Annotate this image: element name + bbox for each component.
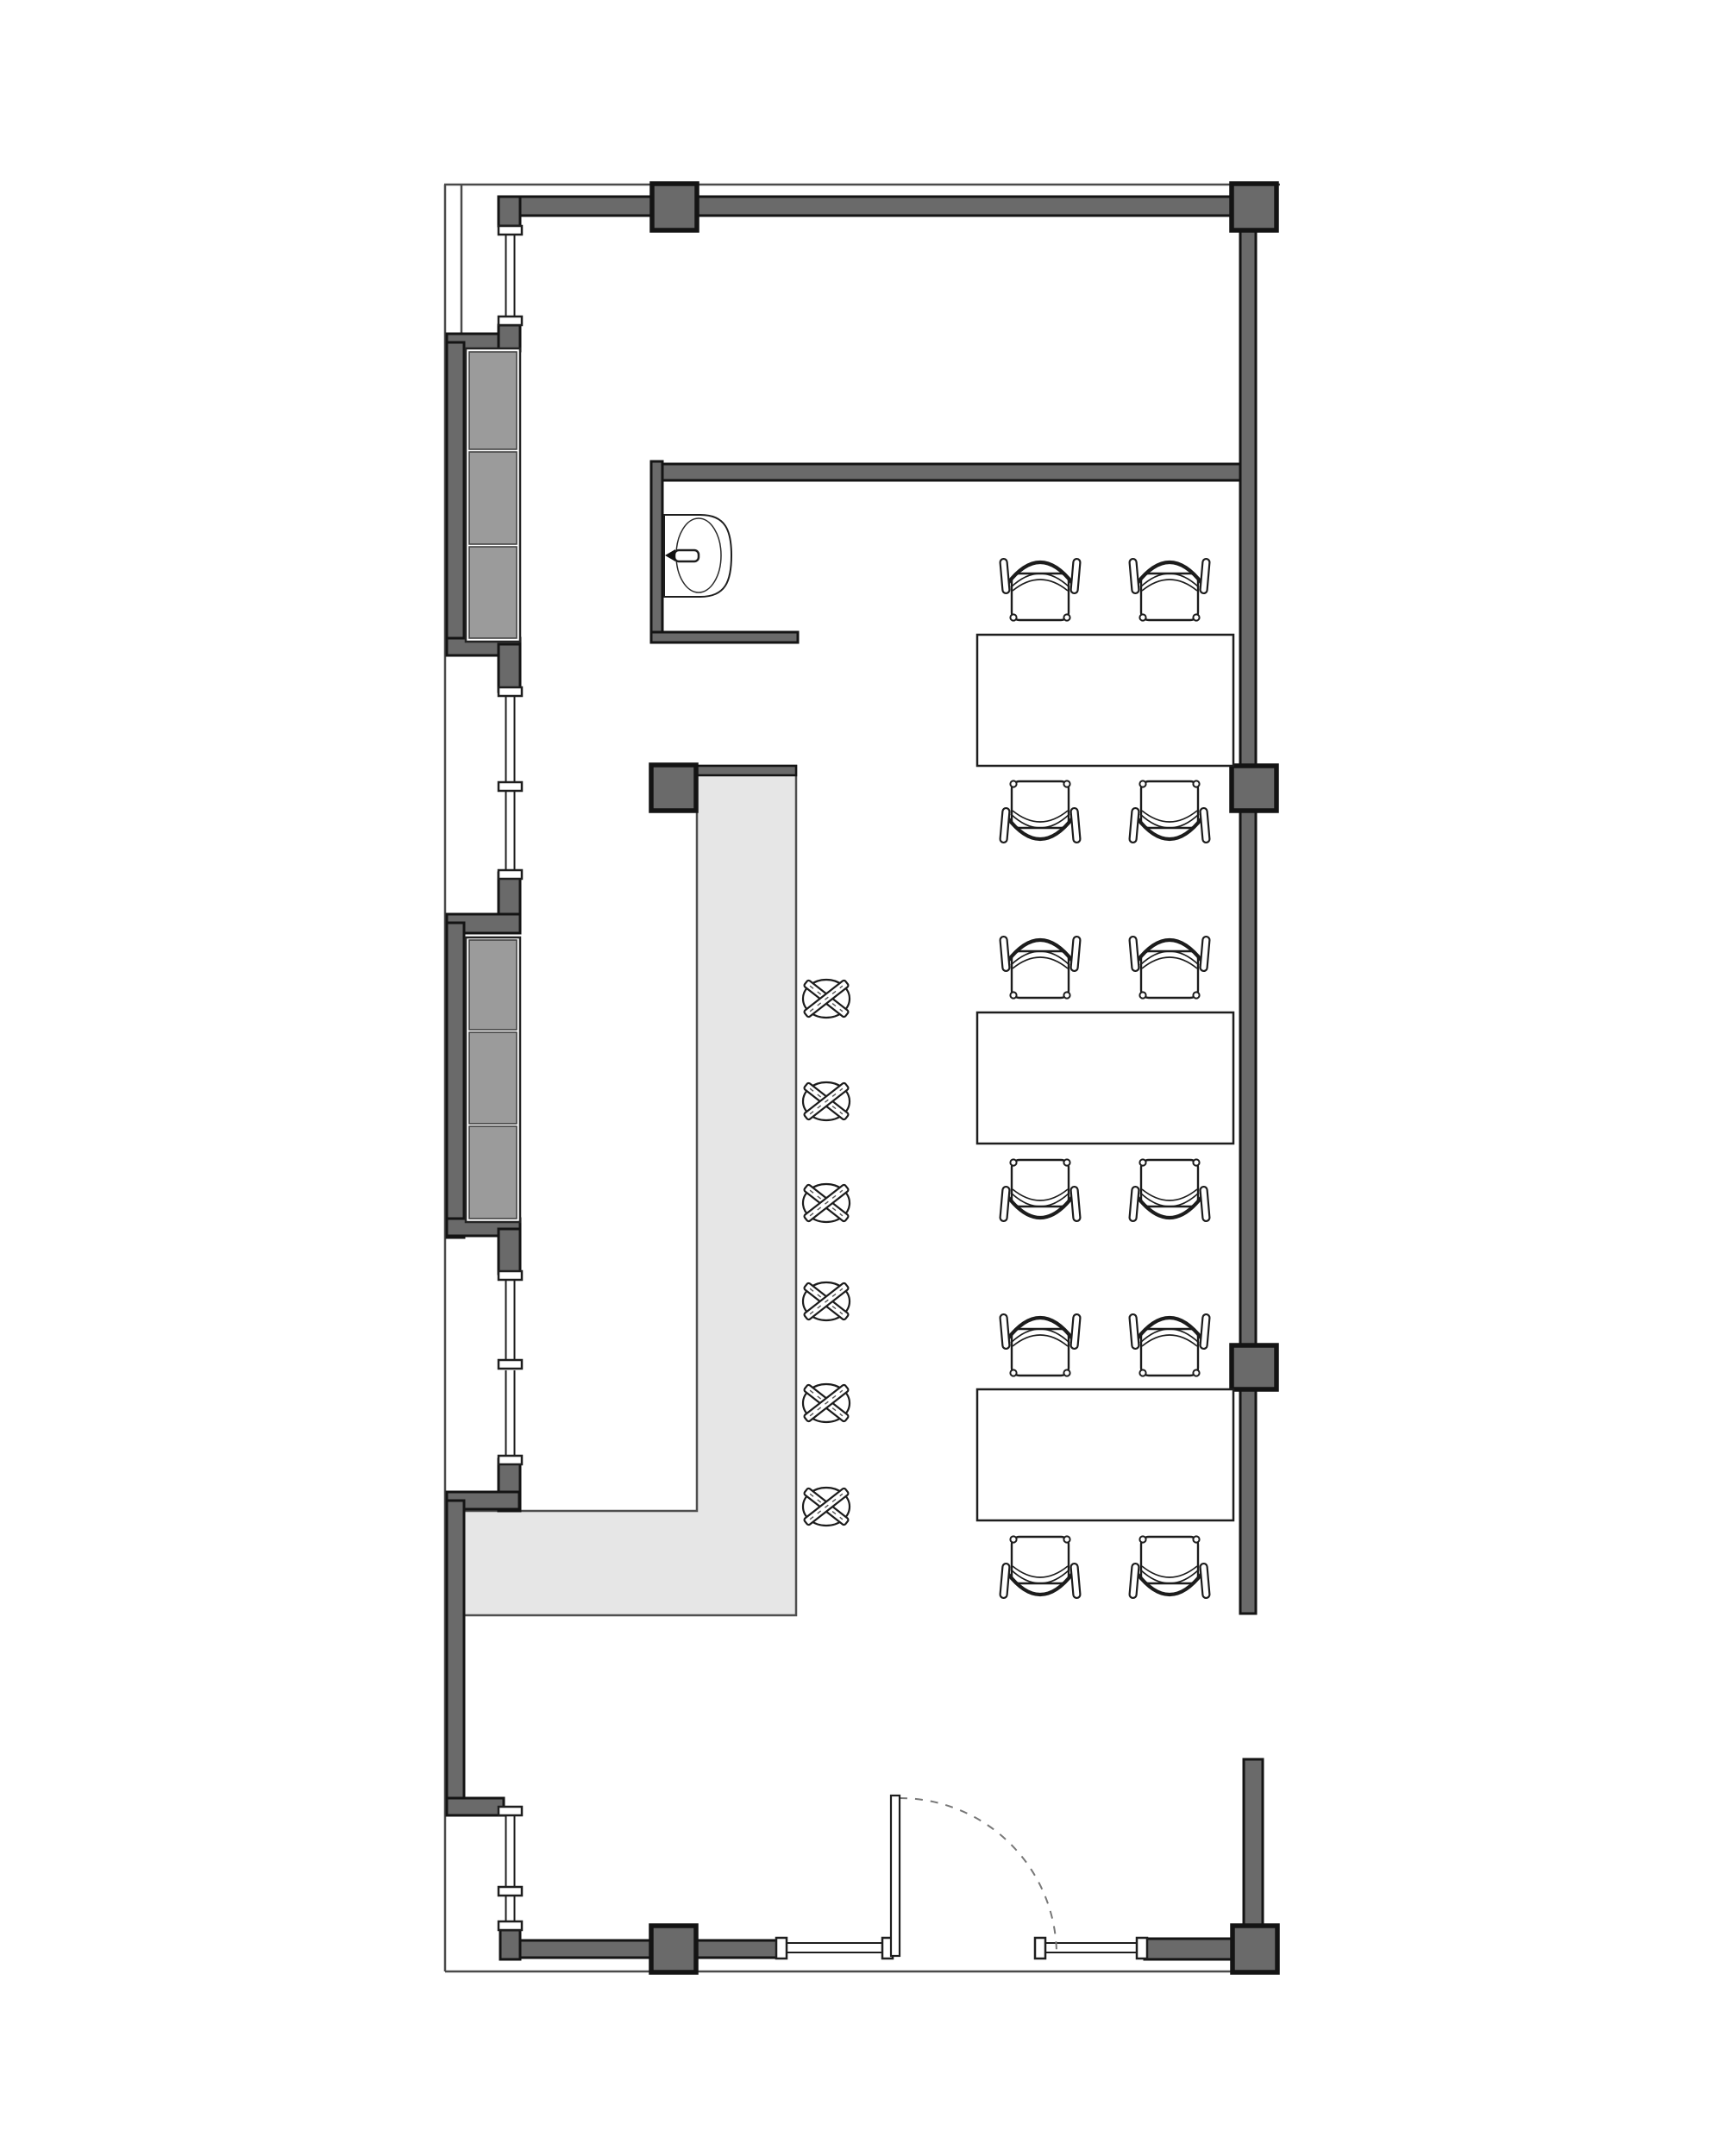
wall-top-left-block (499, 197, 520, 226)
closet-wall-left (651, 461, 662, 642)
wall-bottom-left-band (500, 1940, 778, 1958)
wall-right-lower-stub (1244, 1759, 1263, 1932)
column-right-2 (1232, 1345, 1276, 1389)
casework-lower-panel-3 (469, 1126, 517, 1219)
window-left-1-cap-1 (499, 687, 522, 696)
bar-stool-1 (803, 980, 850, 1018)
column-top-mid (652, 184, 697, 230)
bar-stool-4 (803, 1282, 850, 1320)
bar-stool-2 (803, 1082, 850, 1120)
plan-background (0, 0, 1725, 2156)
dining-table-1 (977, 635, 1233, 766)
column-right-1 (1232, 766, 1276, 811)
bar-stool-3 (803, 1184, 850, 1222)
wall-left-block-w2-top (499, 1229, 520, 1274)
window-left-1-cap-2 (499, 782, 522, 791)
wall-left-jog-top-block (499, 325, 520, 351)
bar-counter-cap (697, 766, 796, 775)
column-bottom-mid (651, 1926, 696, 1972)
wall-top-band (499, 197, 1232, 216)
wall-bottom-left-corner (500, 1930, 520, 1959)
wall-left-c (447, 1501, 464, 1815)
casework-upper-panel-2 (469, 452, 517, 544)
wall-bottom-right-band (1145, 1939, 1235, 1959)
window-left-upper-corner-cap-2 (499, 317, 522, 325)
casework-upper-panel-1 (469, 352, 517, 449)
window-left-3-cap-3 (499, 1921, 522, 1930)
floor-plan-page (0, 0, 1725, 2156)
column-bottom-right (1233, 1926, 1277, 1972)
window-left-2-cap-1 (499, 1271, 522, 1280)
column-counter (651, 765, 696, 811)
wall-left-block-w1-top (499, 644, 520, 692)
bar-stool-6 (803, 1488, 850, 1526)
dining-table-3 (977, 1389, 1233, 1520)
water-heater-valve-rod (674, 550, 699, 561)
window-left-2-cap-3 (499, 1456, 522, 1464)
floor-plan (0, 0, 1725, 2156)
casework-lower-panel-2 (469, 1032, 517, 1124)
door-leaf (891, 1796, 900, 1956)
window-left-3-cap-2 (499, 1887, 522, 1896)
window-left-3-cap-1 (499, 1807, 522, 1815)
casework-lower-panel-1 (469, 940, 517, 1030)
closet-wall-top (651, 464, 1240, 480)
casework-upper-panel-3 (469, 547, 517, 638)
dining-table-2 (977, 1012, 1233, 1144)
window-left-2-cap-2 (499, 1360, 522, 1369)
bar-stool-5 (803, 1384, 850, 1422)
wall-left-a (447, 342, 464, 655)
wall-right-upper (1240, 216, 1256, 1614)
closet-wall-bottom (651, 632, 798, 642)
window-bottom-2-cap-1 (1035, 1938, 1045, 1959)
column-top-right (1232, 184, 1276, 230)
window-left-1-cap-3 (499, 870, 522, 879)
window-left-upper-corner-cap-1 (499, 226, 522, 235)
wall-left-b (447, 923, 464, 1238)
wall-left-jog-bottom (447, 1798, 504, 1815)
window-bottom-2-cap-2 (1137, 1938, 1147, 1959)
window-bottom-1-cap-1 (776, 1938, 787, 1959)
